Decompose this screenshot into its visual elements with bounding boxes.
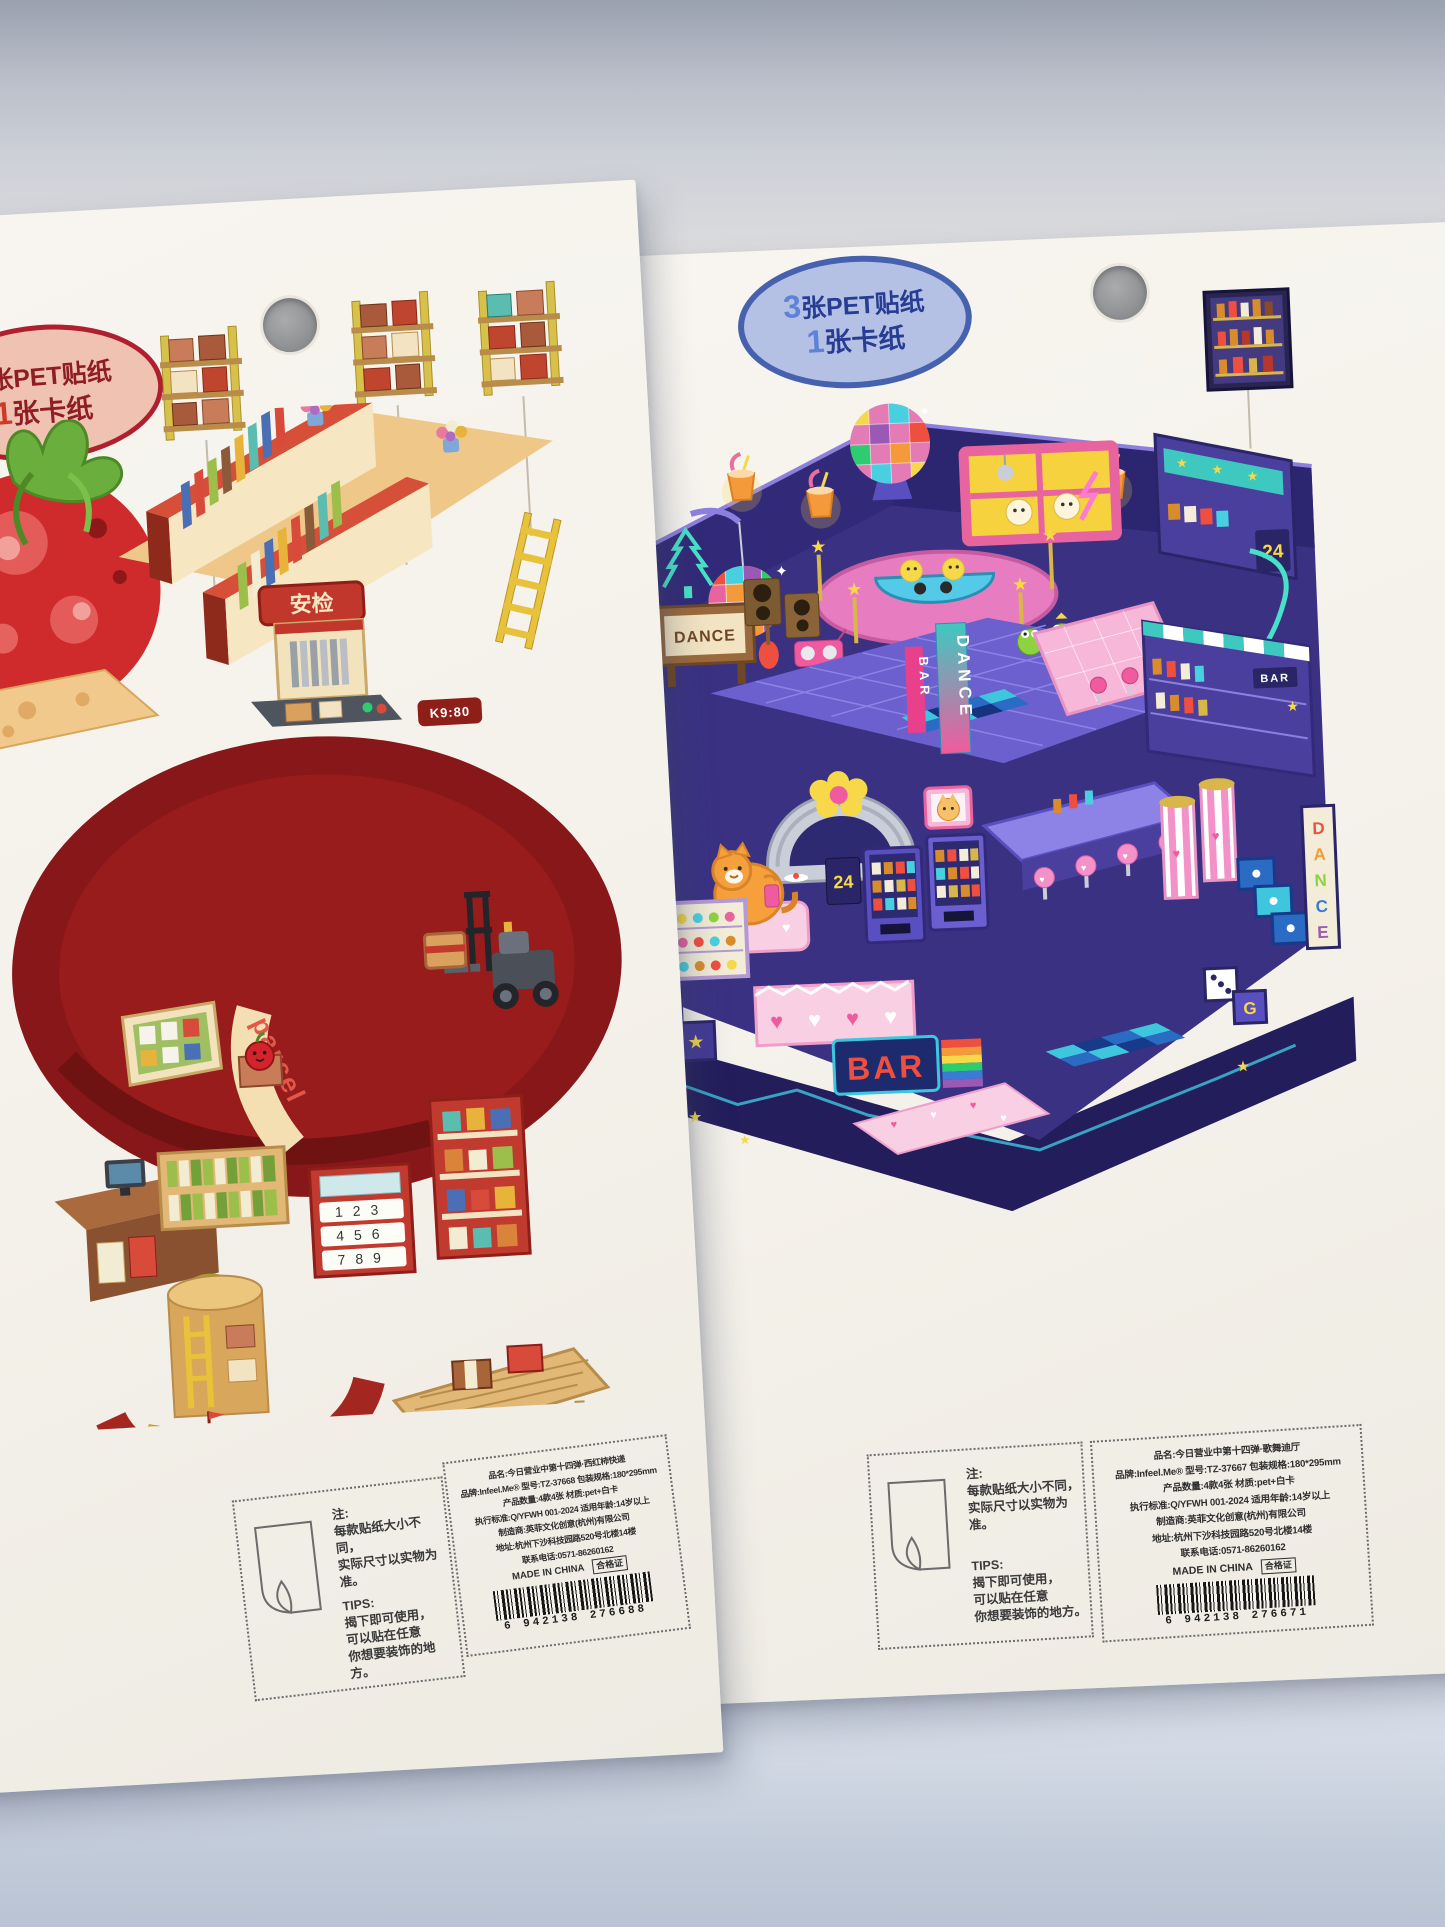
rainbow-stripe-block: [941, 1038, 983, 1088]
conveyor-table: [392, 1341, 613, 1433]
svg-text:安检: 安检: [289, 590, 334, 617]
svg-text:BAR: BAR: [846, 1048, 926, 1087]
badge-label-stickers: 张PET贴纸: [800, 288, 925, 323]
barcode-right: 6 942138 276671: [1156, 1575, 1316, 1628]
rainbow-dance-column: D A N C E: [1302, 805, 1340, 948]
register-display: K9:80: [417, 697, 482, 727]
svg-text:♥: ♥: [930, 1109, 937, 1121]
spiral-ramp-tower: [103, 1268, 374, 1434]
svg-text:G: G: [1243, 999, 1257, 1019]
svg-text:★: ★: [688, 1109, 703, 1127]
svg-text:♥: ♥: [770, 1009, 784, 1035]
svg-text:♥: ♥: [1000, 1112, 1007, 1124]
svg-text:♥: ♥: [846, 1005, 860, 1031]
svg-text:BAR: BAR: [916, 656, 933, 700]
svg-text:A: A: [1313, 845, 1326, 864]
badge-line-2: 1张卡纸: [806, 319, 907, 361]
svg-text:♥: ♥: [1172, 846, 1181, 861]
svg-text:★: ★: [810, 536, 827, 557]
svg-text:E: E: [1317, 923, 1329, 942]
svg-text:BAR: BAR: [1260, 672, 1290, 685]
peel-sticker-icon: [884, 1478, 953, 1574]
tomato-graphic: [0, 416, 167, 718]
note-text: 注: 每款贴纸大小不同， 实际尺寸以实物为准。: [966, 1460, 1086, 1535]
tomato-warehouse-illustration: parcel 安检 K9:80: [0, 390, 647, 1433]
svg-text:♥: ♥: [1039, 875, 1045, 885]
svg-text:C: C: [1315, 897, 1328, 916]
svg-text:♥: ♥: [1081, 863, 1087, 873]
note-text: 注: 每款贴纸大小不同， 实际尺寸以实物为准。: [331, 1494, 452, 1591]
heart-block-strip: ♥ ♥ ♥ ♥: [755, 981, 915, 1046]
note-line: 实际尺寸以实物为准。: [968, 1494, 1086, 1535]
punch-hole-left: [262, 297, 319, 354]
keypad-shelf: 123 456 789: [309, 1164, 415, 1277]
tips-text: TIPS: 揭下即可使用， 可以贴在任意 你想要装饰的地方。: [342, 1586, 463, 1683]
punch-hole-right: [1092, 265, 1148, 321]
badge-label-card: 张卡纸: [824, 323, 907, 358]
svg-text:♥: ♥: [970, 1100, 977, 1112]
mini-shelf-sticker: [468, 279, 570, 402]
svg-text:★: ★: [687, 1032, 705, 1054]
certificate-tag: 合格证: [591, 1555, 628, 1574]
note-tips-box-left: 注: 每款贴纸大小不同， 实际尺寸以实物为准。 TIPS: 揭下即可使用， 可以…: [232, 1476, 466, 1701]
security-gate: 安检: [245, 580, 403, 728]
badge-count-stickers: 3: [782, 288, 802, 325]
svg-text:♥: ♥: [808, 1007, 822, 1033]
tips-text: TIPS: 揭下即可使用， 可以贴在任意 你想要装饰的地方。: [971, 1552, 1087, 1627]
svg-text:456: 456: [336, 1225, 390, 1244]
svg-text:✦: ✦: [918, 403, 931, 419]
product-info-box-right: 品名:今日营业中第十四弹·歌舞迪厅 品牌:Infeel.Me® 型号:TZ-37…: [1090, 1424, 1374, 1643]
svg-text:★: ★: [1012, 574, 1029, 595]
bar-neon-sign: BAR: [833, 1034, 983, 1094]
svg-text:♥: ♥: [782, 919, 791, 935]
svg-text:DANCE: DANCE: [953, 634, 976, 720]
svg-text:♥: ♥: [1211, 828, 1220, 843]
svg-text:★: ★: [1176, 455, 1188, 470]
svg-text:24: 24: [833, 872, 854, 893]
tall-goods-shelf: [430, 1095, 531, 1258]
hours-24-sign: 24: [825, 857, 861, 904]
disco-club-illustration: ★ ★ ★: [588, 366, 1390, 1407]
sticker-sheet-tomato-express: 3张PET贴纸 1张卡纸: [0, 180, 723, 1796]
note-tips-box-right: 注: 每款贴纸大小不同， 实际尺寸以实物为准。 TIPS: 揭下即可使用， 可以…: [867, 1442, 1094, 1650]
green-books-shelf: [158, 1147, 288, 1230]
svg-text:N: N: [1314, 871, 1327, 890]
svg-text:123: 123: [334, 1201, 388, 1220]
peel-sticker-icon: [251, 1519, 325, 1618]
cat-chef-window: [925, 787, 973, 829]
ladder-icon: [496, 512, 561, 649]
svg-text:★: ★: [1211, 462, 1223, 477]
svg-text:K9:80: K9:80: [429, 704, 470, 721]
certificate-tag: 合格证: [1260, 1557, 1296, 1574]
badge-label-stickers: 张PET贴纸: [0, 358, 113, 396]
svg-text:789: 789: [337, 1249, 391, 1268]
made-in-china-label: MADE IN CHINA: [1172, 1561, 1253, 1578]
product-info-box-left: 品名:今日营业中第十四弹·西红柿快递 品牌:Infeel.Me® 型号:TZ-3…: [442, 1434, 691, 1657]
svg-text:♥: ♥: [890, 1119, 897, 1131]
mini-shelf-sticker: [341, 289, 443, 412]
svg-text:★: ★: [739, 1132, 751, 1147]
sticker-count-badge-right: 3张PET贴纸 1张卡纸: [734, 249, 975, 395]
photo-scene: 3张PET贴纸 1张卡纸: [0, 0, 1445, 1927]
svg-text:★: ★: [1286, 698, 1299, 715]
svg-text:★: ★: [1246, 468, 1258, 483]
svg-text:✦: ✦: [775, 563, 788, 581]
svg-text:♥: ♥: [1122, 851, 1128, 861]
svg-text:D: D: [1312, 819, 1325, 838]
svg-text:★: ★: [1042, 525, 1059, 546]
svg-text:DANCE: DANCE: [674, 627, 737, 647]
svg-text:★: ★: [1236, 1058, 1250, 1076]
svg-text:★: ★: [846, 579, 863, 600]
svg-text:♥: ♥: [884, 1004, 898, 1030]
